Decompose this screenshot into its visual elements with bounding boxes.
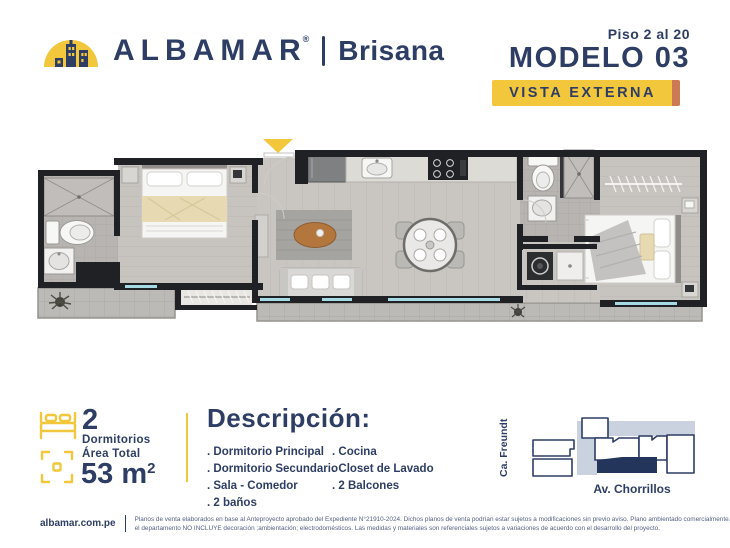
floor-plan [30,136,710,336]
brand-name: ALBAMAR® [113,34,309,68]
fridge [308,154,346,182]
bed-icon [38,412,78,440]
description-item: . Closet de Lavado [332,461,434,478]
bed-secondary [142,163,227,238]
description-item: . Cocina [332,444,434,461]
model-title: MODELO 03 [509,42,690,75]
map-building [667,435,694,473]
area-value: 53 m2 [81,458,155,491]
kitchen [308,154,517,182]
legal-fineprint: Planos de venta elaborados en base al An… [135,515,730,533]
description-title: Descripción: [207,403,371,434]
sink [44,248,74,274]
bed-main [584,215,681,283]
description-item: . 2 baños [207,495,338,512]
description-item: . Dormitorio Secundario [207,461,338,478]
footer: albamar.com.pe Planos de venta elaborado… [40,515,730,533]
street-label-bottom: Av. Chorrillos [552,482,712,496]
description-item: . Sala - Comedor [207,478,338,495]
map-building [533,440,574,456]
description-column-2: . Cocina . Closet de Lavado . 2 Balcones [332,444,434,495]
dining-area [396,219,464,271]
toilet [46,221,94,245]
view-badge: VISTA EXTERNA [492,80,680,106]
map-highlighted-building [597,457,657,473]
sofa [280,268,362,298]
trademark: ® [303,34,310,44]
coffee-table [294,223,336,248]
albamar-logo-icon [42,35,100,68]
sofa-pillow [333,275,350,289]
balcony-1 [38,288,175,318]
street-label-left: Ca. Freundt [498,412,510,484]
floors-range: Piso 2 al 20 [608,26,690,42]
stats-divider [186,413,188,482]
bedrooms-stat [38,412,78,445]
sink [528,196,556,221]
nightstand [122,167,138,183]
legal-line-2: el departamento NO INCLUYE decoración ;a… [135,525,730,534]
brand-divider [322,36,325,66]
description-item: . Dormitorio Principal [207,444,338,461]
view-badge-accent [672,80,680,106]
location-map [527,409,712,484]
map-building [639,436,667,460]
project-name: Brisana [338,35,444,67]
map-building [582,418,608,438]
map-building [595,438,639,460]
bedrooms-label: Dormitorios [82,434,150,446]
legal-line-1: Planos de venta elaborados en base al An… [135,516,730,525]
description-column-1: . Dormitorio Principal . Dormitorio Secu… [207,444,338,512]
sofa-pillow [312,275,329,289]
description-item: . 2 Balcones [332,478,434,495]
map-building [533,459,572,476]
entrance-arrow-icon [263,139,293,153]
website-link[interactable]: albamar.com.pe [40,515,126,532]
expand-area-icon [40,450,74,484]
view-badge-label: VISTA EXTERNA [509,85,656,101]
area-stat [40,450,74,489]
sofa-pillow [291,275,308,289]
bedrooms-value: 2 [82,404,99,437]
header: ALBAMAR® Brisana [42,34,445,68]
model-header: Piso 2 al 20 MODELO 03 VISTA EXTERNA [492,26,690,106]
